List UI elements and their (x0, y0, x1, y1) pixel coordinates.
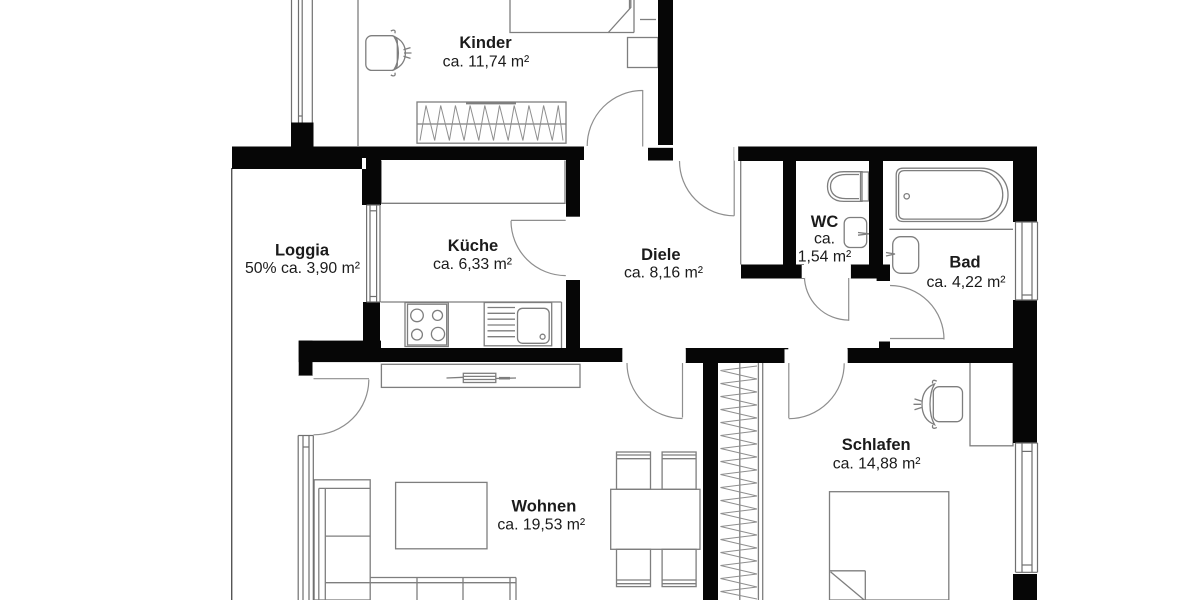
svg-text:ca. 6,33 m²: ca. 6,33 m² (433, 256, 512, 273)
svg-text:Loggia: Loggia (275, 242, 330, 260)
svg-text:ca. 11,74 m²: ca. 11,74 m² (443, 53, 530, 70)
svg-text:Schlafen: Schlafen (842, 436, 911, 454)
svg-text:Kinder: Kinder (459, 34, 512, 52)
svg-text:WC: WC (811, 213, 839, 231)
svg-text:ca. 8,16 m²: ca. 8,16 m² (624, 265, 703, 282)
svg-text:ca. 14,88 m²: ca. 14,88 m² (833, 456, 921, 473)
svg-text:ca. 19,53 m²: ca. 19,53 m² (497, 517, 585, 534)
svg-text:Diele: Diele (641, 246, 680, 264)
svg-text:Küche: Küche (448, 237, 498, 255)
svg-text:ca. 4,22 m²: ca. 4,22 m² (926, 274, 1005, 291)
svg-text:Wohnen: Wohnen (512, 498, 577, 516)
svg-text:Bad: Bad (949, 254, 980, 272)
svg-text:50% ca. 3,90 m²: 50% ca. 3,90 m² (245, 260, 360, 277)
svg-text:ca.: ca. (814, 231, 835, 248)
svg-text:1,54 m²: 1,54 m² (798, 249, 852, 266)
